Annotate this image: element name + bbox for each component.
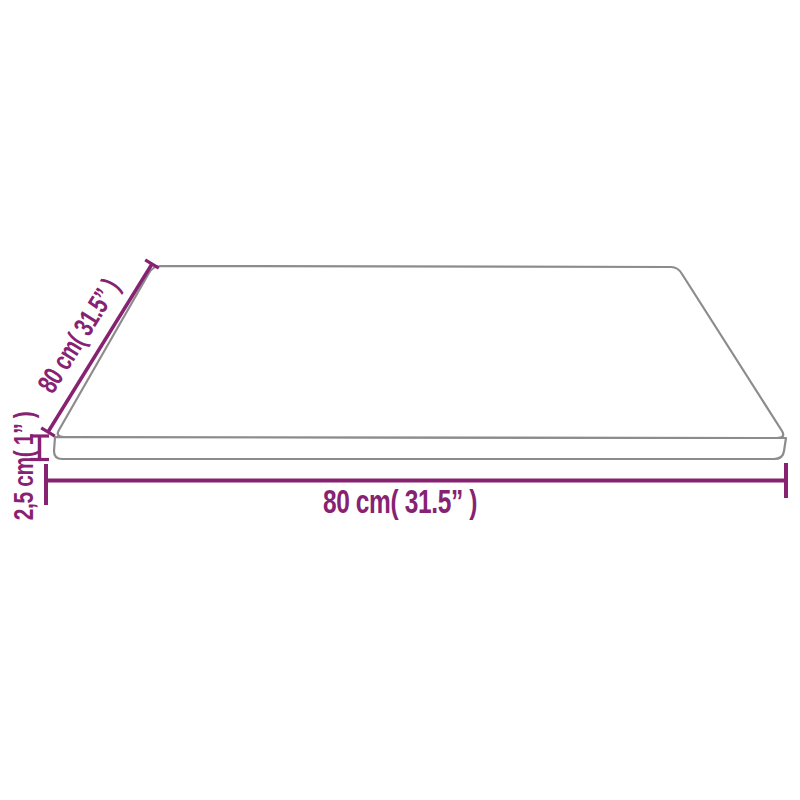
tabletop-edge-band xyxy=(54,437,786,459)
thickness-dimension-label: 2,5 cm( 1” ) xyxy=(10,391,38,541)
tabletop-top-face xyxy=(58,266,783,438)
tabletop-line-drawing xyxy=(0,0,800,800)
width-dimension-label: 80 cm( 31.5” ) xyxy=(292,484,508,518)
product-dimension-diagram: 80 cm( 31.5” ) 2,5 cm( 1” ) 80 cm( 31.5”… xyxy=(0,0,800,800)
